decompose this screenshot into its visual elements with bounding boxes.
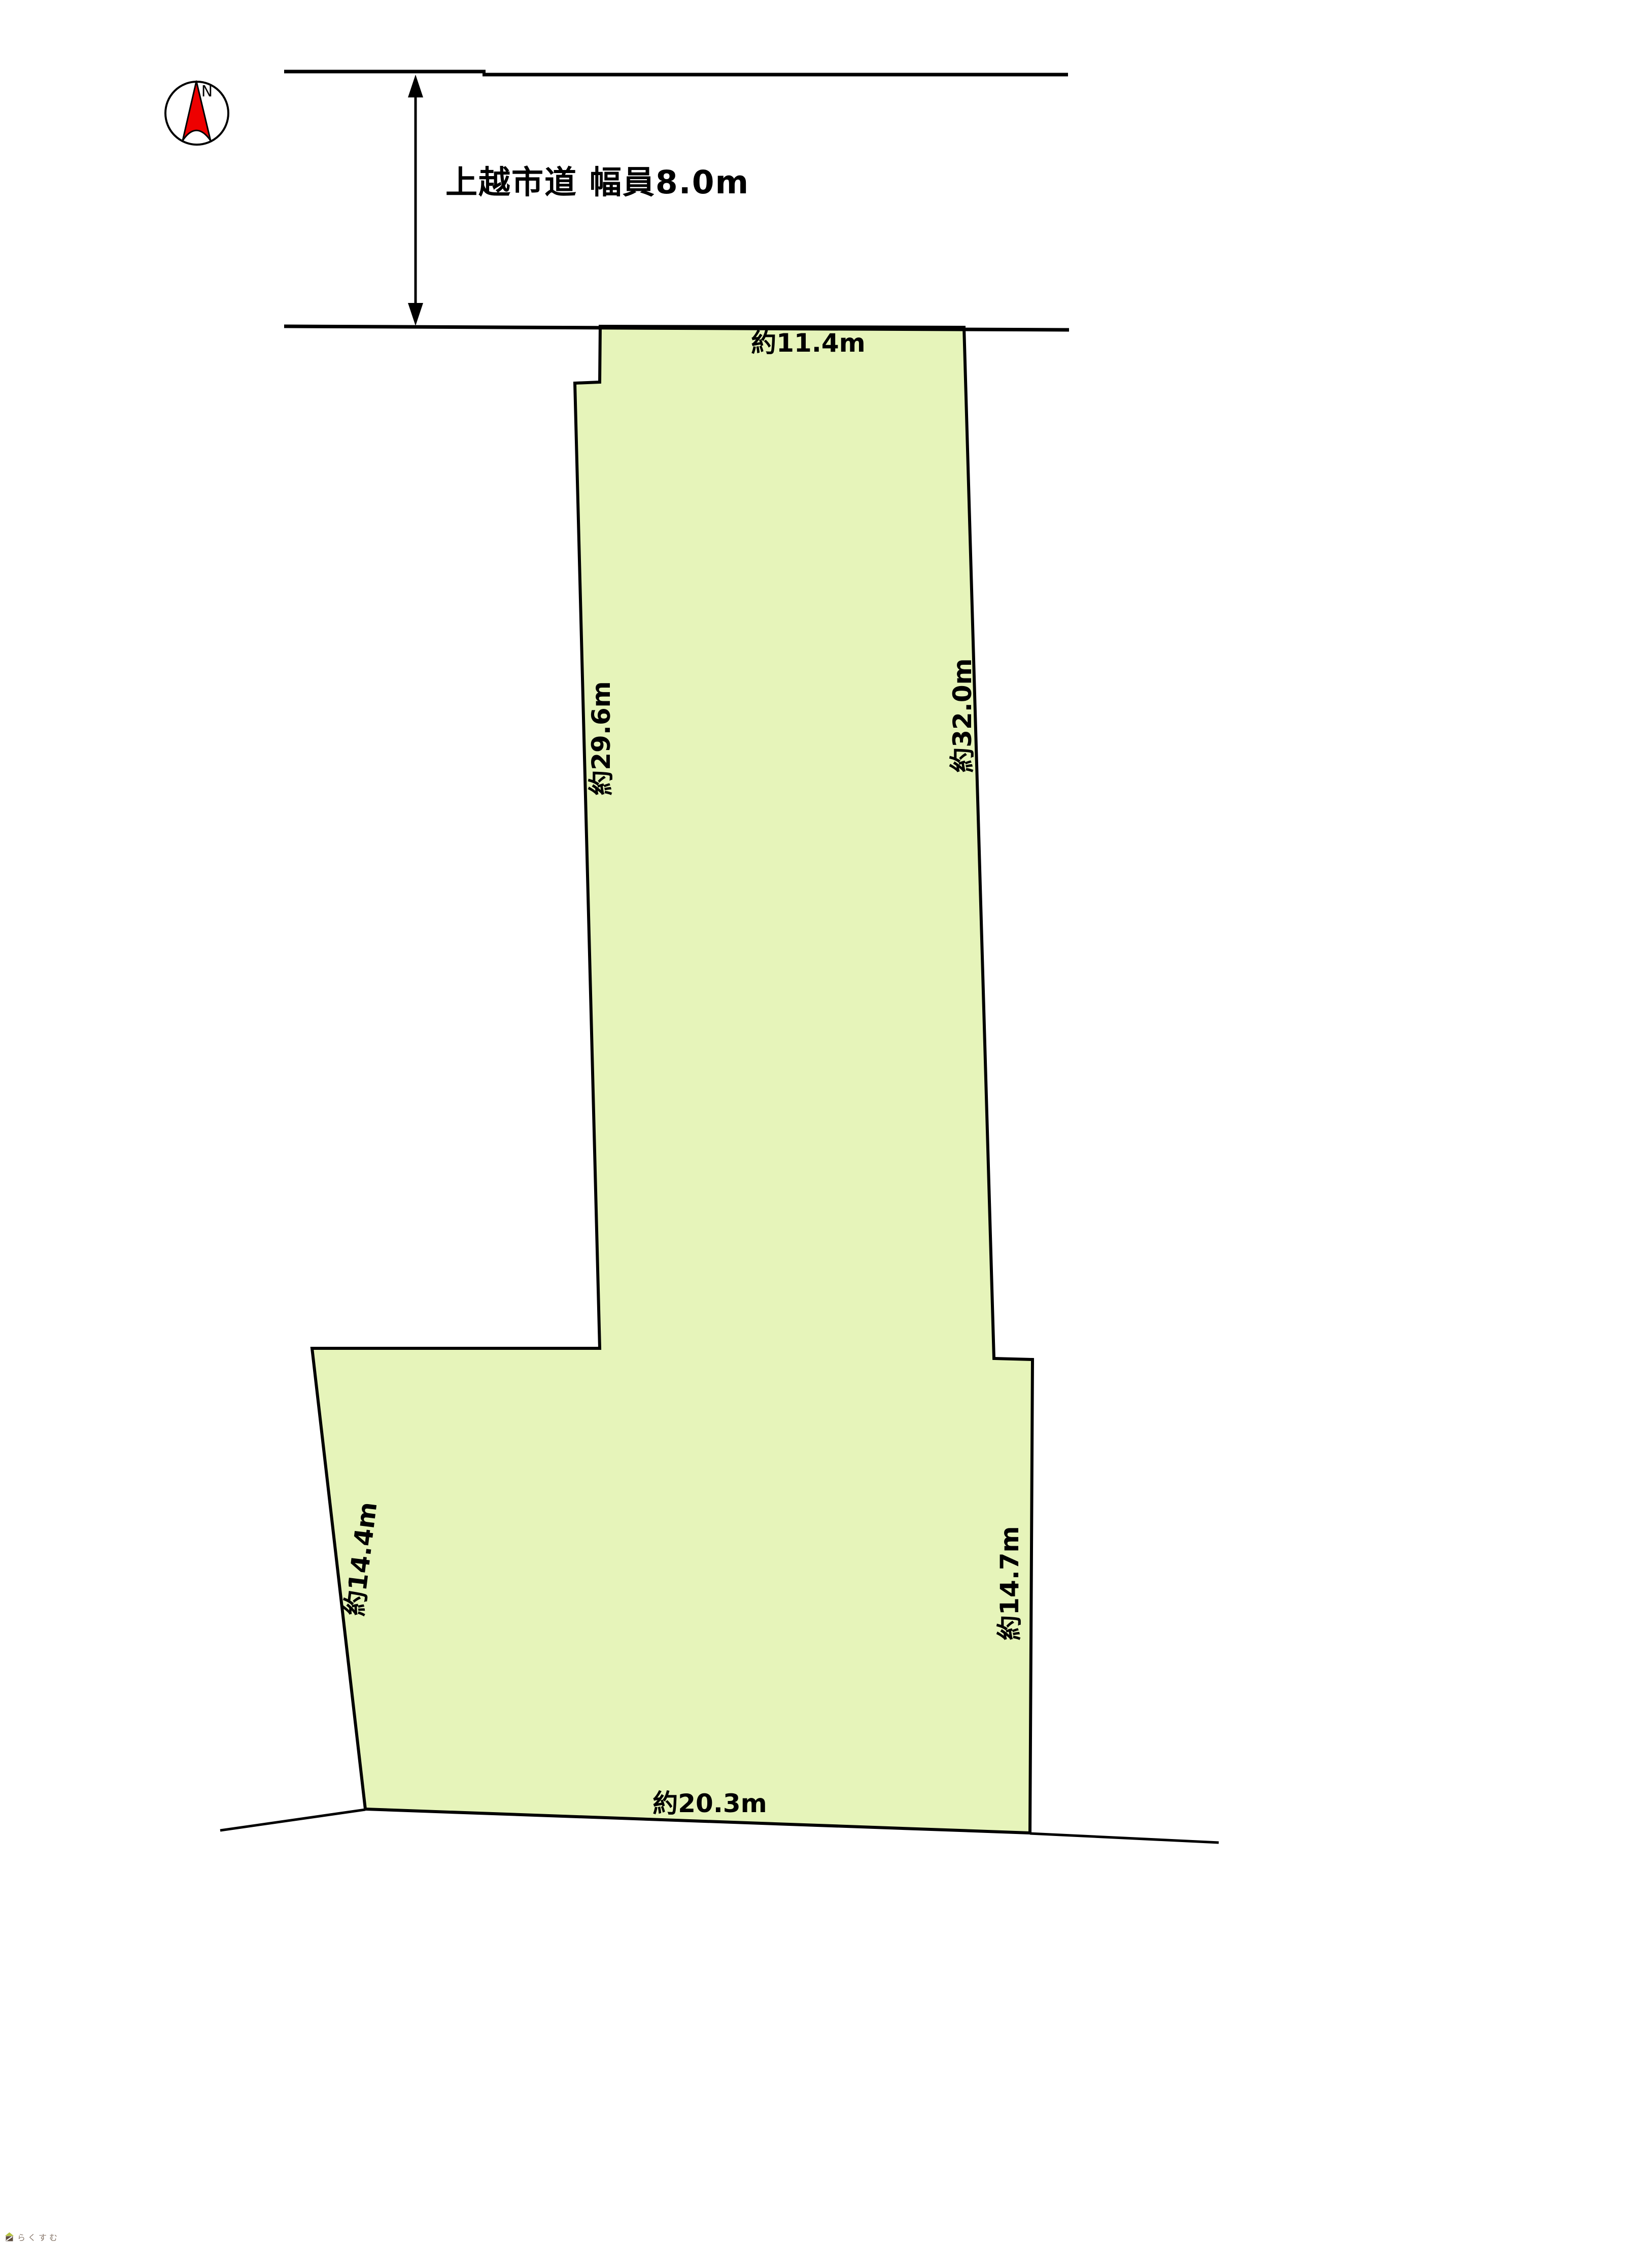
compass-north-label: N: [201, 84, 213, 99]
dimension-label-upper-right: 約32.0m: [950, 658, 975, 772]
neighbor-boundary-line-left: [220, 1810, 365, 1830]
dimension-label-top: 約11.4m: [751, 330, 865, 356]
land-plot-shape: [312, 326, 1032, 1833]
road-width-arrow: [408, 75, 423, 326]
road-width-arrowhead-top: [408, 75, 423, 97]
house-logo-icon: [5, 2232, 14, 2241]
road-width-arrowhead-bottom: [408, 303, 423, 326]
compass-icon: [165, 81, 228, 145]
watermark: らくすむ: [5, 2231, 60, 2243]
dimension-label-upper-left: 約29.6m: [589, 681, 614, 795]
road-name-label: 上越市道 幅員8.0m: [445, 166, 749, 198]
dimension-label-bottom: 約20.3m: [652, 1791, 767, 1816]
neighbor-boundary-line-right: [1030, 1833, 1219, 1843]
site-plan-page: N 上越市道 幅員8.0m 約11.4m 約29.6m 約32.0m 約14.4…: [0, 0, 1652, 2245]
dimension-label-lower-right: 約14.7m: [997, 1526, 1022, 1640]
watermark-text: らくすむ: [17, 2231, 60, 2243]
